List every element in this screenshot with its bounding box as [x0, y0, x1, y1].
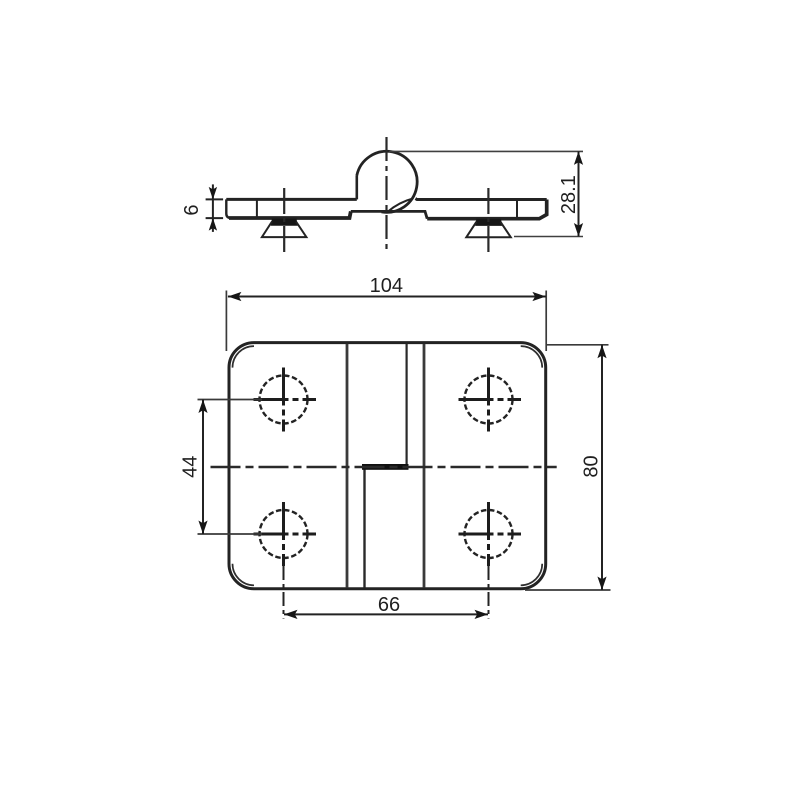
svg-text:66: 66 [378, 594, 400, 616]
svg-text:80: 80 [581, 455, 603, 477]
svg-text:6: 6 [181, 204, 203, 215]
svg-text:104: 104 [370, 275, 403, 297]
svg-text:44: 44 [180, 456, 202, 478]
svg-text:28.1: 28.1 [558, 175, 580, 214]
